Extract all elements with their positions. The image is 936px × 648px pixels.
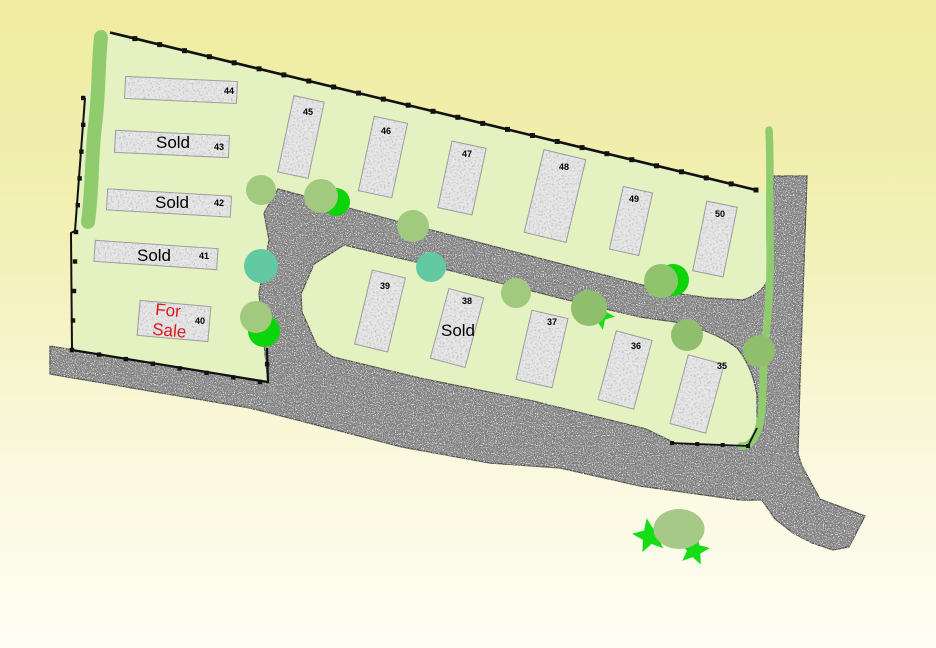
svg-text:Sale: Sale bbox=[152, 320, 188, 342]
svg-text:42: 42 bbox=[214, 198, 224, 208]
svg-text:49: 49 bbox=[629, 194, 639, 204]
svg-text:36: 36 bbox=[631, 341, 641, 351]
svg-text:41: 41 bbox=[199, 251, 209, 261]
svg-text:50: 50 bbox=[715, 209, 725, 219]
svg-text:39: 39 bbox=[380, 281, 390, 291]
svg-text:Sold: Sold bbox=[155, 193, 189, 212]
svg-text:Sold: Sold bbox=[137, 246, 171, 265]
svg-text:Sold: Sold bbox=[441, 321, 475, 340]
svg-text:47: 47 bbox=[462, 149, 472, 159]
svg-text:43: 43 bbox=[214, 142, 224, 152]
svg-text:48: 48 bbox=[559, 162, 569, 172]
svg-text:35: 35 bbox=[717, 361, 727, 371]
svg-text:37: 37 bbox=[547, 317, 557, 327]
svg-text:For: For bbox=[155, 300, 182, 321]
svg-text:46: 46 bbox=[381, 126, 391, 136]
svg-text:45: 45 bbox=[303, 107, 313, 117]
svg-text:38: 38 bbox=[462, 296, 472, 306]
svg-text:40: 40 bbox=[195, 316, 205, 326]
svg-text:44: 44 bbox=[224, 86, 234, 96]
svg-text:Sold: Sold bbox=[156, 133, 190, 152]
